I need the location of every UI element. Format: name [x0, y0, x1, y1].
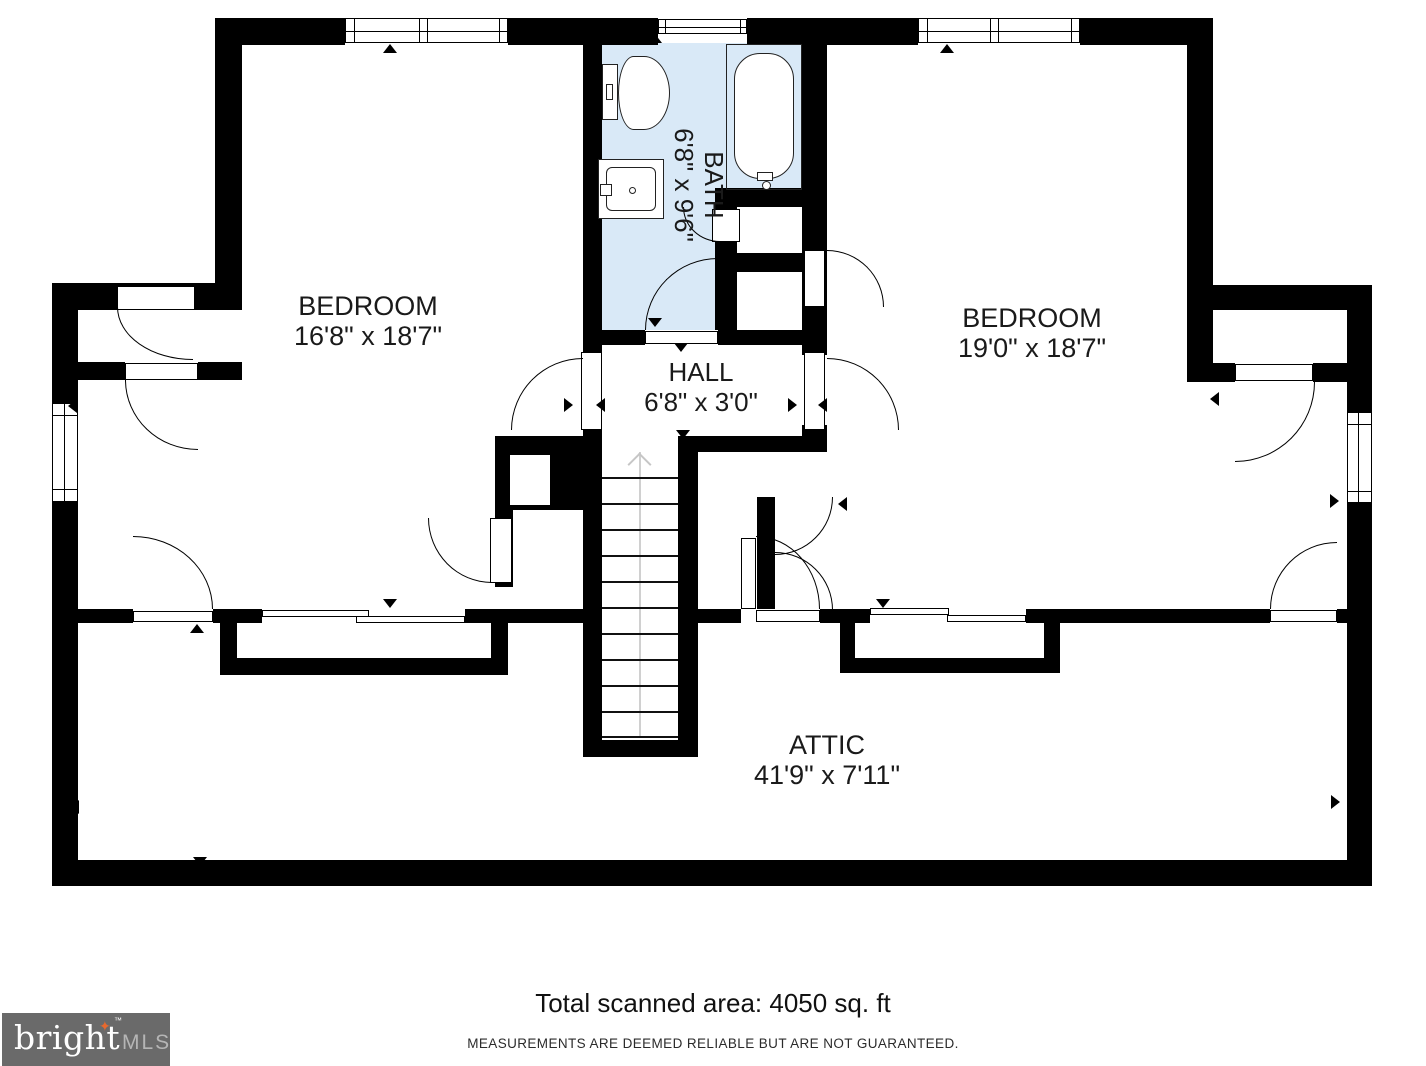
- wall-marker-left-icon: [596, 398, 605, 412]
- wall-segment: [52, 283, 78, 403]
- window-mullion-line: [927, 18, 928, 43]
- window-mullion-line: [1347, 491, 1372, 492]
- door-swing-arc: [775, 552, 833, 610]
- sink-drain: [629, 187, 636, 194]
- dormer-window-band: [262, 610, 369, 617]
- wall-marker-up-icon: [940, 44, 954, 53]
- door-swing-arc: [125, 380, 198, 450]
- bathtub-knob: [762, 181, 771, 190]
- window-mullion-line: [354, 18, 355, 43]
- window-mullion-line: [658, 27, 747, 28]
- room-dims: 19'0" x 18'7": [958, 333, 1106, 363]
- window-mullion-line: [427, 18, 428, 43]
- window-mullion-line: [64, 403, 65, 502]
- door-swing-arc: [1270, 542, 1337, 609]
- door-opening: [133, 611, 213, 622]
- bright-mls-logo: bright ✦ ™ MLS: [2, 1013, 170, 1066]
- door-swing-arc: [511, 358, 583, 430]
- door-opening: [804, 250, 825, 307]
- wall-marker-right-icon: [1330, 494, 1339, 508]
- stair-up-arrow-icon: [627, 452, 651, 476]
- stair-tread: [602, 711, 678, 713]
- room-label-bath: BATH 6'8" x 9'6": [669, 128, 729, 242]
- wall-segment: [1347, 503, 1372, 885]
- total-scanned-area-text: Total scanned area: 4050 sq. ft: [535, 988, 891, 1019]
- bathtub-spout: [757, 172, 773, 181]
- wall-segment: [213, 609, 262, 623]
- toilet-flush-knob: [606, 84, 613, 100]
- stair-tread: [602, 477, 678, 479]
- door-swing-arc: [117, 307, 193, 360]
- logo-trademark: ™: [114, 1016, 122, 1025]
- room-name: BATH: [699, 128, 729, 242]
- door-opening: [756, 610, 820, 622]
- door-opening: [741, 538, 756, 609]
- wall-marker-up-icon: [190, 624, 204, 633]
- room-label-bedroom-right: BEDROOM 19'0" x 18'7": [958, 303, 1106, 363]
- door-opening: [125, 363, 198, 380]
- room-dims: 6'8" x 9'6": [669, 128, 699, 242]
- window-mullion-line: [419, 18, 420, 43]
- room-label-bedroom-left: BEDROOM 16'8" x 18'7": [294, 291, 442, 351]
- window-mullion-line: [1358, 412, 1359, 503]
- wall-segment: [78, 362, 125, 380]
- wall-marker-right-icon: [564, 398, 573, 412]
- window-mullion-line: [998, 18, 999, 43]
- wall-segment: [52, 860, 1372, 886]
- wall-segment: [215, 18, 242, 310]
- wall-segment: [508, 18, 658, 45]
- stair-tread: [602, 685, 678, 687]
- wall-marker-left-icon: [70, 800, 79, 814]
- wall-segment: [78, 609, 133, 623]
- door-swing-arc: [1235, 382, 1315, 462]
- stair-tread: [602, 503, 678, 505]
- stair-tread: [602, 555, 678, 557]
- wall-marker-down-icon: [876, 599, 890, 608]
- window-mullion-line: [990, 18, 991, 43]
- window-mullion-line: [1071, 18, 1072, 43]
- logo-star-icon: ✦: [99, 1019, 111, 1033]
- wall-marker-down-icon: [193, 857, 207, 866]
- wall-segment: [198, 362, 242, 380]
- stair-tread: [602, 736, 678, 738]
- dormer-window-band: [356, 616, 465, 623]
- wall-segment: [465, 609, 602, 623]
- room-dims: 6'8" x 3'0": [644, 387, 758, 417]
- room-name: ATTIC: [754, 730, 900, 760]
- wall-marker-left-icon: [68, 399, 77, 413]
- dormer-window-band: [870, 608, 949, 615]
- door-swing-arc: [775, 497, 833, 555]
- wall-marker-up-icon: [648, 34, 662, 43]
- wall-segment: [1044, 623, 1060, 658]
- wall-segment: [583, 432, 602, 757]
- wall-marker-right-icon: [1331, 795, 1340, 809]
- closet-interior: [510, 455, 550, 505]
- door-opening: [804, 352, 825, 430]
- wall-segment: [1187, 18, 1213, 310]
- wall-marker-up-icon: [383, 44, 397, 53]
- wall-marker-left-icon: [818, 398, 827, 412]
- bathtub-basin: [734, 53, 794, 179]
- closet-interior: [737, 207, 802, 253]
- wall-segment: [220, 658, 508, 675]
- room-dims: 41'9" x 7'11": [754, 760, 900, 790]
- logo-suffix-text: MLS: [122, 1031, 171, 1055]
- stair-tread: [602, 659, 678, 661]
- window-mullion-line: [740, 19, 741, 34]
- wall-segment: [840, 658, 1060, 673]
- room-dims: 16'8" x 18'7": [294, 321, 442, 351]
- wall-segment: [678, 436, 827, 452]
- wall-segment: [1187, 310, 1213, 382]
- wall-segment: [1026, 609, 1270, 623]
- wall-segment: [1213, 363, 1235, 382]
- stair-tread: [602, 529, 678, 531]
- wall-segment: [1187, 285, 1372, 310]
- door-opening: [1270, 610, 1337, 622]
- door-opening: [1235, 364, 1313, 381]
- stair-tread: [602, 581, 678, 583]
- wall-marker-down-icon: [383, 599, 397, 608]
- door-swing-arc: [827, 250, 884, 307]
- closet-interior: [737, 272, 802, 330]
- wall-segment: [583, 740, 698, 757]
- window-mullion-line: [1347, 424, 1372, 425]
- door-swing-arc: [133, 536, 213, 609]
- window-mullion-line: [665, 19, 666, 34]
- wall-segment: [678, 438, 698, 757]
- window: [1347, 412, 1372, 503]
- wall-marker-down-icon: [648, 318, 662, 327]
- door-opening: [581, 352, 602, 430]
- room-name: HALL: [644, 357, 758, 387]
- room-name: BEDROOM: [958, 303, 1106, 333]
- wall-marker-down-icon: [674, 343, 688, 352]
- window-mullion-line: [499, 18, 500, 43]
- room-label-hall: HALL 6'8" x 3'0": [644, 357, 758, 417]
- room-name: BEDROOM: [294, 291, 442, 321]
- wall-segment: [1337, 609, 1347, 623]
- toilet-bowl: [618, 56, 670, 130]
- stair-tread: [602, 607, 678, 609]
- door-swing-arc: [428, 518, 492, 583]
- stair-centerline: [639, 452, 641, 736]
- measurements-disclaimer-text: MEASUREMENTS ARE DEEMED RELIABLE BUT ARE…: [467, 1036, 959, 1051]
- wall-segment: [698, 609, 741, 623]
- stair-tread: [602, 633, 678, 635]
- room-label-attic: ATTIC 41'9" x 7'11": [754, 730, 900, 790]
- wall-segment: [52, 502, 78, 885]
- wall-segment: [820, 609, 870, 623]
- wall-segment: [491, 623, 508, 658]
- wall-marker-left-icon: [1210, 392, 1219, 406]
- door-swing-arc: [827, 358, 899, 430]
- wall-marker-right-icon: [788, 398, 797, 412]
- wall-segment: [1313, 363, 1347, 382]
- wall-segment: [583, 330, 645, 345]
- door-opening: [490, 518, 512, 583]
- sink-faucet: [600, 184, 612, 196]
- wall-segment: [747, 18, 918, 45]
- wall-marker-down-icon: [676, 430, 690, 439]
- wall-marker-left-icon: [838, 497, 847, 511]
- wall-segment: [715, 188, 827, 207]
- floor-plan-page: BEDROOM 16'8" x 18'7" BATH 6'8" x 9'6" B…: [0, 0, 1426, 1066]
- dormer-window-band: [947, 615, 1026, 622]
